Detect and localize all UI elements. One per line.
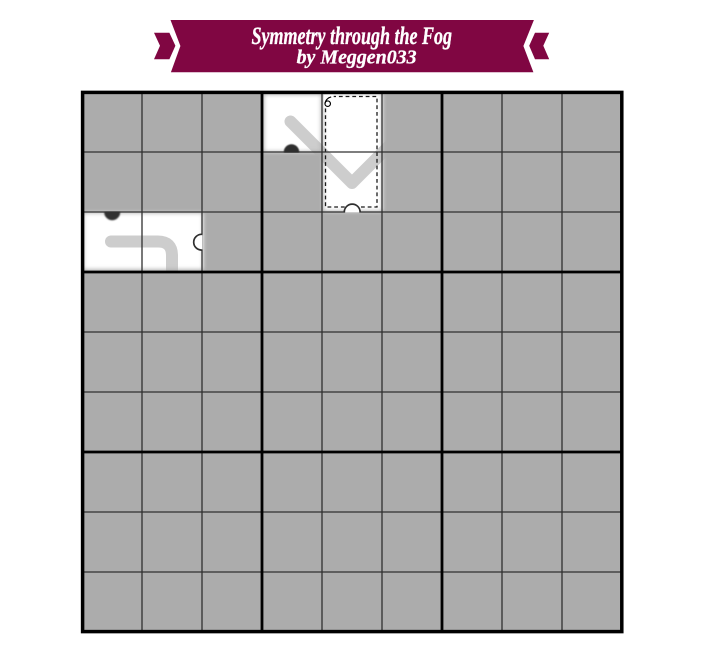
- svg-text:by Meggen033: by Meggen033: [297, 46, 417, 68]
